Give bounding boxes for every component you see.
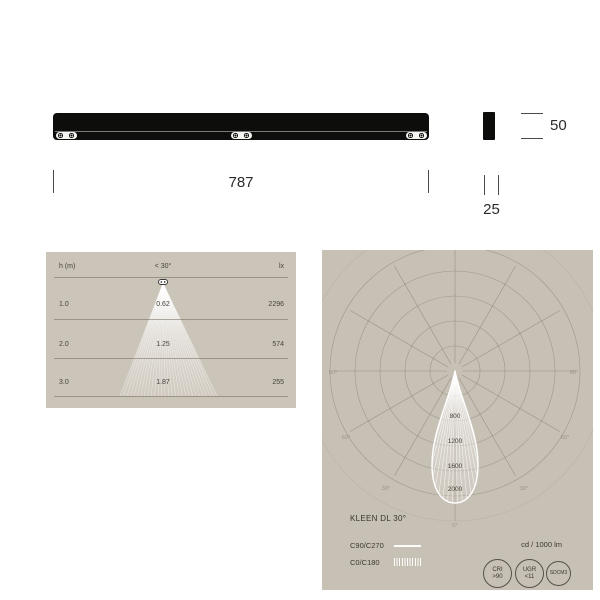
row-diameter: 1.87 — [46, 379, 280, 386]
legend-swatch-hatched — [394, 558, 421, 566]
angle-label-60-left: 60° — [342, 435, 351, 441]
badge-sdcm-label: SDCM3 — [550, 571, 568, 577]
row-lux: 574 — [272, 341, 284, 348]
photometric-panel: 800 1200 1600 2000 90° 90° 60° 60° 30° 3… — [322, 250, 593, 590]
polar-diagram: 800 1200 1600 2000 90° 90° 60° 60° 30° 3… — [322, 250, 593, 590]
width-dimension-label: 25 — [476, 201, 507, 218]
lamp-dot — [233, 133, 238, 138]
angle-label-0: 0° — [452, 523, 458, 529]
lamp-dot — [419, 133, 424, 138]
angle-label-90-left: 90° — [329, 370, 338, 376]
legend-c0-c180: C0/C180 — [350, 559, 380, 567]
angle-label-30-left: 30° — [382, 486, 391, 492]
datasheet-page: 787 50 25 h (m) < 30° lx 1.0 0.6 — [0, 0, 600, 600]
row-lux: 255 — [272, 379, 284, 386]
height-tick-top — [521, 113, 543, 114]
angle-label-60-right: 60° — [561, 435, 570, 441]
badge-ugr-value: <11 — [525, 574, 535, 581]
ring-label: 1600 — [448, 463, 463, 470]
badge-ugr-label: UGR — [523, 567, 536, 574]
legend-c90-c270: C90/C270 — [350, 542, 384, 550]
lamp-module-right — [406, 132, 427, 139]
row-lux: 2296 — [268, 301, 284, 308]
badge-sdcm: SDCM3 — [546, 561, 571, 586]
length-dimension-label: 787 — [53, 174, 429, 191]
illuminance-cone-panel: h (m) < 30° lx 1.0 0.62 2296 2.0 1.25 57… — [46, 252, 296, 408]
unit-label: cd / 1000 lm — [472, 540, 562, 549]
badge-cri: CRI >90 — [483, 559, 512, 588]
lamp-module-center — [231, 132, 252, 139]
table-rule — [54, 319, 288, 320]
badge-cri-value: >90 — [492, 574, 502, 581]
downlight-icon — [158, 279, 168, 285]
ring-label: 2000 — [448, 486, 463, 493]
angle-label-30-right: 30° — [520, 486, 529, 492]
col-header-lux: lx — [279, 263, 284, 270]
table-rule — [54, 396, 288, 397]
ring-label: 800 — [450, 413, 461, 420]
product-title: KLEEN DL 30° — [350, 514, 406, 523]
height-tick-bottom — [521, 138, 543, 139]
width-tick-left — [484, 175, 485, 195]
height-dimension-label: 50 — [550, 117, 567, 134]
table-rule — [54, 358, 288, 359]
luminaire-side-view — [483, 112, 495, 140]
table-rule — [54, 277, 288, 278]
row-diameter: 1.25 — [46, 341, 280, 348]
ring-label: 1200 — [448, 438, 463, 445]
lamp-dot — [58, 133, 63, 138]
badge-ugr: UGR <11 — [515, 559, 544, 588]
angle-label-90-right: 90° — [570, 370, 579, 376]
width-tick-right — [498, 175, 499, 195]
luminaire-front-view — [53, 113, 429, 140]
lamp-module-left — [56, 132, 77, 139]
badge-cri-label: CRI — [492, 567, 502, 574]
legend-swatch-solid — [394, 545, 421, 547]
col-header-beam-angle: < 30° — [46, 263, 280, 270]
lamp-dot — [408, 133, 413, 138]
lamp-dot — [244, 133, 249, 138]
lamp-dot — [69, 133, 74, 138]
row-diameter: 0.62 — [46, 301, 280, 308]
